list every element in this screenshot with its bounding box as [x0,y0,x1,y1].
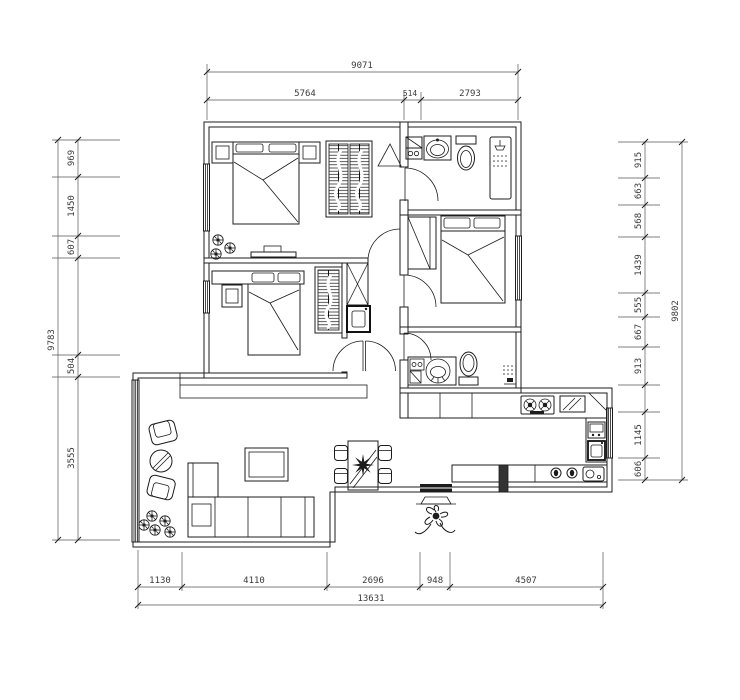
dim-bottom-total: 13631 [357,594,384,604]
bathroom1-fixtures [406,136,511,199]
window-bedroom3 [204,281,210,313]
dim-right-seg2: 663 [634,183,644,199]
dim-top-seg2: 514 [403,89,418,98]
dim-right-seg3: 568 [634,213,644,229]
kitchen-counter-icon [408,393,607,492]
dim-top-seg1: 5764 [294,89,316,99]
dim-right-seg7: 913 [634,358,644,374]
toilet-icon [456,136,476,170]
hallway-fixtures [347,263,370,332]
corner-sofa-icon [188,497,314,537]
dim-right-seg5: 555 [634,297,644,313]
washbasin-icon [424,136,451,160]
dim-top-total: 9071 [351,61,373,71]
storage-jar-icon [551,468,577,478]
dim-bottom-seg4: 948 [427,576,443,586]
door-bathroom1 [405,168,438,201]
living-room-furniture [139,419,392,537]
armchair-icon [148,419,178,446]
door-bedroom3 [333,341,363,371]
dining-table-icon [335,441,392,490]
nightstand-icon [299,142,320,163]
cutting-board-icon [560,396,585,412]
vanity-basin-icon [408,357,456,385]
duct-shaft-icon [347,263,368,305]
bedroom2-furniture [408,216,505,303]
dim-left-seg3: 607 [67,239,77,255]
dim-left-seg1: 969 [67,150,77,166]
floor-plan-page: 9071 5764 514 2793 969 1450 607 504 3555… [0,0,740,700]
wardrobe-icon [315,267,342,333]
nightstand-icon [212,142,233,163]
corner-shelf-icon [589,393,607,411]
dim-right-seg9: 606 [634,461,644,477]
dim-right: 915 663 568 1439 555 667 913 1145 606 98… [618,139,688,483]
shower-icon [490,137,511,199]
dim-left-seg5: 3555 [67,447,77,469]
single-bed-icon [212,271,304,355]
dim-bottom-seg2: 4110 [243,576,265,586]
window-balcony [132,380,139,542]
water-heater-icon [347,306,370,332]
door-hallway [366,341,396,371]
plant-icon [211,235,235,259]
dim-bottom-seg3: 2696 [362,576,384,586]
dim-right-seg4: 1439 [634,254,644,276]
shower-icon [503,365,517,384]
wardrobe-icon [408,217,436,269]
dim-left-total: 9783 [47,329,57,351]
round-side-table-icon [150,450,172,472]
kitchen-fixtures [408,393,607,492]
armchair-icon [146,474,176,501]
wardrobe-icon [326,141,372,217]
dim-bottom-seg1: 1130 [149,576,171,586]
nightstand-icon [222,285,242,307]
dim-right-total: 9802 [671,300,681,322]
dim-right-seg1: 915 [634,152,644,168]
entry-door [416,484,456,504]
dim-bottom: 1130 4110 2696 948 4507 13631 [135,550,606,609]
dim-right-seg8: 1145 [634,424,644,446]
dim-left-seg2: 1450 [67,195,77,217]
plant-icon [139,511,175,537]
window-bedroom1 [204,164,210,231]
double-bed-icon [441,216,505,303]
coffee-table-icon [245,448,288,481]
window-bedroom2 [516,236,522,300]
dim-top: 9071 5764 514 2793 [204,61,521,120]
gas-stove-icon [521,396,554,414]
refrigerator-icon [588,441,605,460]
kitchen-sink-icon [583,467,604,481]
bedroom1-furniture [211,141,401,259]
door-bedroom1 [368,229,400,261]
microwave-icon [588,422,605,438]
double-bed-icon [233,142,299,224]
dim-bottom-seg5: 4507 [515,576,537,586]
door-bathroom2 [404,333,431,360]
tv-cabinet-icon [251,246,296,257]
table-centerpiece-icon [352,454,374,476]
entry-plant-icon [415,505,455,533]
side-table-icon [188,463,218,497]
duct-triangle-icon [378,144,401,166]
dim-right-seg6: 667 [634,324,644,340]
bedroom3-furniture [212,267,342,355]
doors [333,168,456,504]
door-bedroom2 [404,275,436,307]
toilet-icon [459,352,478,385]
bathroom2-fixtures [408,352,517,385]
dim-left: 969 1450 607 504 3555 9783 [47,137,120,543]
dim-left-seg4: 504 [67,358,77,374]
floor-plan-canvas: 9071 5764 514 2793 969 1450 607 504 3555… [0,0,740,700]
dim-top-seg3: 2793 [459,89,481,99]
